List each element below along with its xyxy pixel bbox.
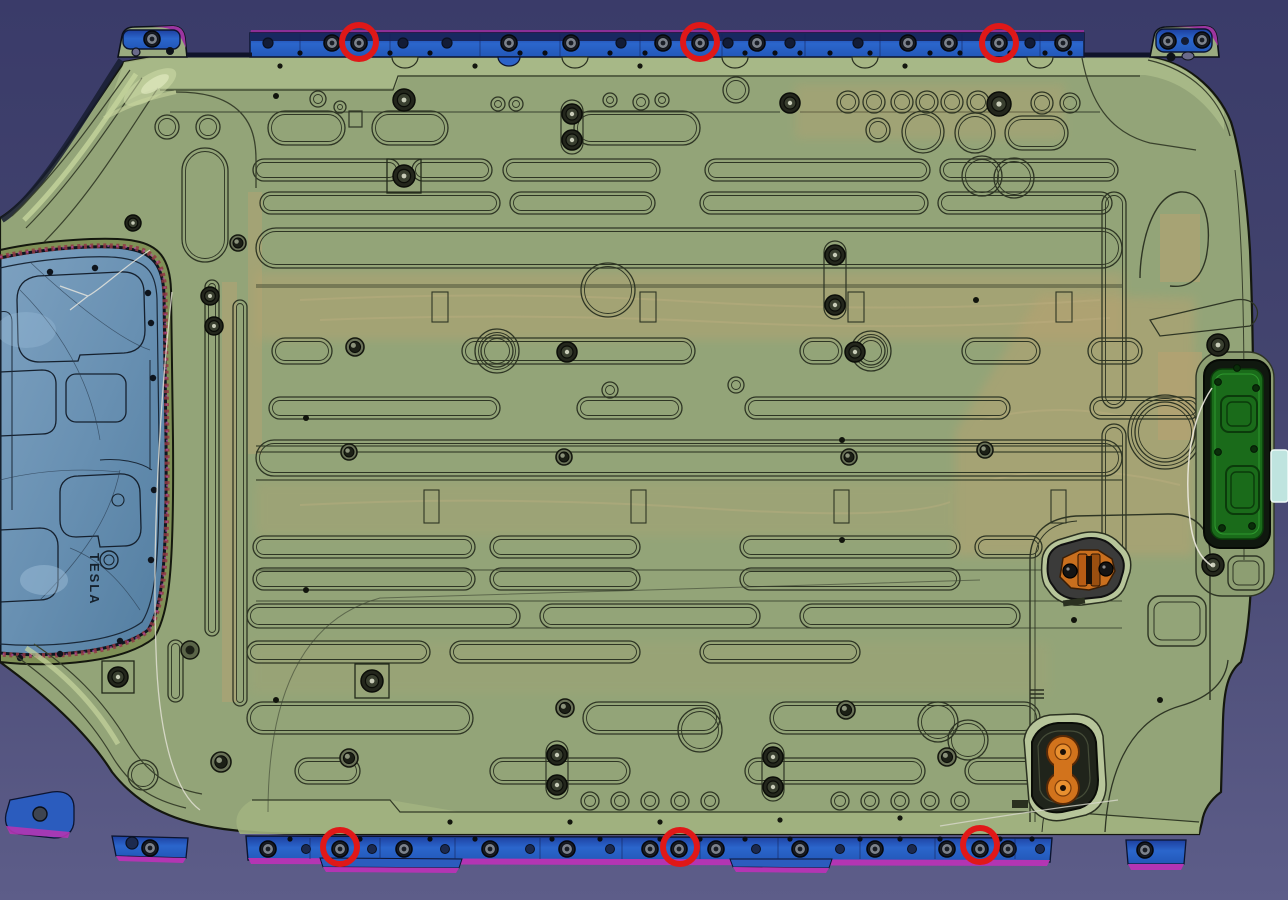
- svg-text:TESLA: TESLA: [87, 553, 102, 606]
